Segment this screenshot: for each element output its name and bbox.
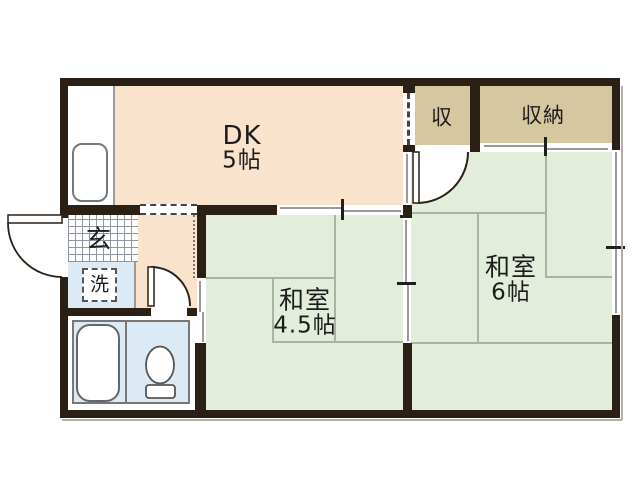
open-boundary-dk-closet <box>407 93 410 145</box>
sliding-door-line <box>199 281 201 312</box>
wall <box>197 205 206 278</box>
wall-closet-divider <box>470 86 480 152</box>
sliding-door-line <box>407 283 409 341</box>
doorway-closet-shu <box>415 145 468 153</box>
bathroom-divider <box>125 320 127 404</box>
sliding-door-tick <box>341 199 344 220</box>
room-size-dk: 5帖 <box>222 150 262 173</box>
room-size-washitsu-45: 4.5帖 <box>273 315 337 338</box>
wall-top <box>60 78 620 86</box>
open-boundary-dk-hall <box>140 204 197 215</box>
wall <box>195 343 206 410</box>
room-label-washitsu-45: 和室 <box>279 288 331 313</box>
label-closet-shu: 収 <box>431 108 453 129</box>
sliding-door-tick <box>397 282 416 285</box>
sliding-door-line <box>405 220 407 282</box>
shadow-line <box>62 419 622 421</box>
tatami-line <box>411 342 612 344</box>
wall <box>403 343 412 410</box>
tatami-line <box>272 341 403 343</box>
entrance-door-leaf <box>8 215 62 223</box>
sliding-door-line <box>484 145 546 147</box>
label-laundry: 洗 <box>90 276 110 295</box>
bathtub <box>76 324 120 402</box>
wall-bathroom-top-left <box>60 308 151 316</box>
tatami-line <box>206 277 336 279</box>
label-genkan: 玄 <box>86 227 112 252</box>
open-boundary-hall <box>193 215 195 278</box>
sliding-door-line <box>202 312 204 342</box>
sliding-door-line <box>546 148 608 150</box>
wall-right-lower <box>612 315 620 418</box>
sliding-door-line <box>280 207 342 209</box>
tatami-line <box>477 212 479 344</box>
wall-bathroom-top-right <box>187 308 197 316</box>
shadow-line <box>621 86 623 420</box>
window-line <box>615 152 617 313</box>
wall <box>403 145 415 152</box>
room-label-washitsu-6: 和室 <box>485 255 537 280</box>
room-size-washitsu-6: 6帖 <box>491 282 531 305</box>
wall-right-upper <box>612 78 620 152</box>
room-label-dk: DK <box>222 123 261 149</box>
wall <box>197 205 277 215</box>
tatami-line <box>546 276 612 278</box>
floor-plan: DK 5帖 和室 6帖 和室 4.5帖 収 収納 玄 洗 <box>0 0 640 480</box>
kitchen-sink <box>72 143 108 202</box>
sliding-door-tick <box>544 137 547 156</box>
label-closet-shuno: 収納 <box>521 106 565 127</box>
hallway <box>136 215 197 308</box>
wall-left-upper <box>60 78 68 218</box>
tatami-line <box>545 152 547 278</box>
entrance-door-arc <box>8 223 62 277</box>
doorway-bathroom <box>151 305 187 316</box>
wall <box>403 78 415 93</box>
sliding-door-line <box>406 154 408 203</box>
sliding-door-line <box>342 210 401 212</box>
wall-bottom <box>60 410 620 418</box>
wall <box>60 205 140 215</box>
wall-left-lower <box>60 277 68 418</box>
